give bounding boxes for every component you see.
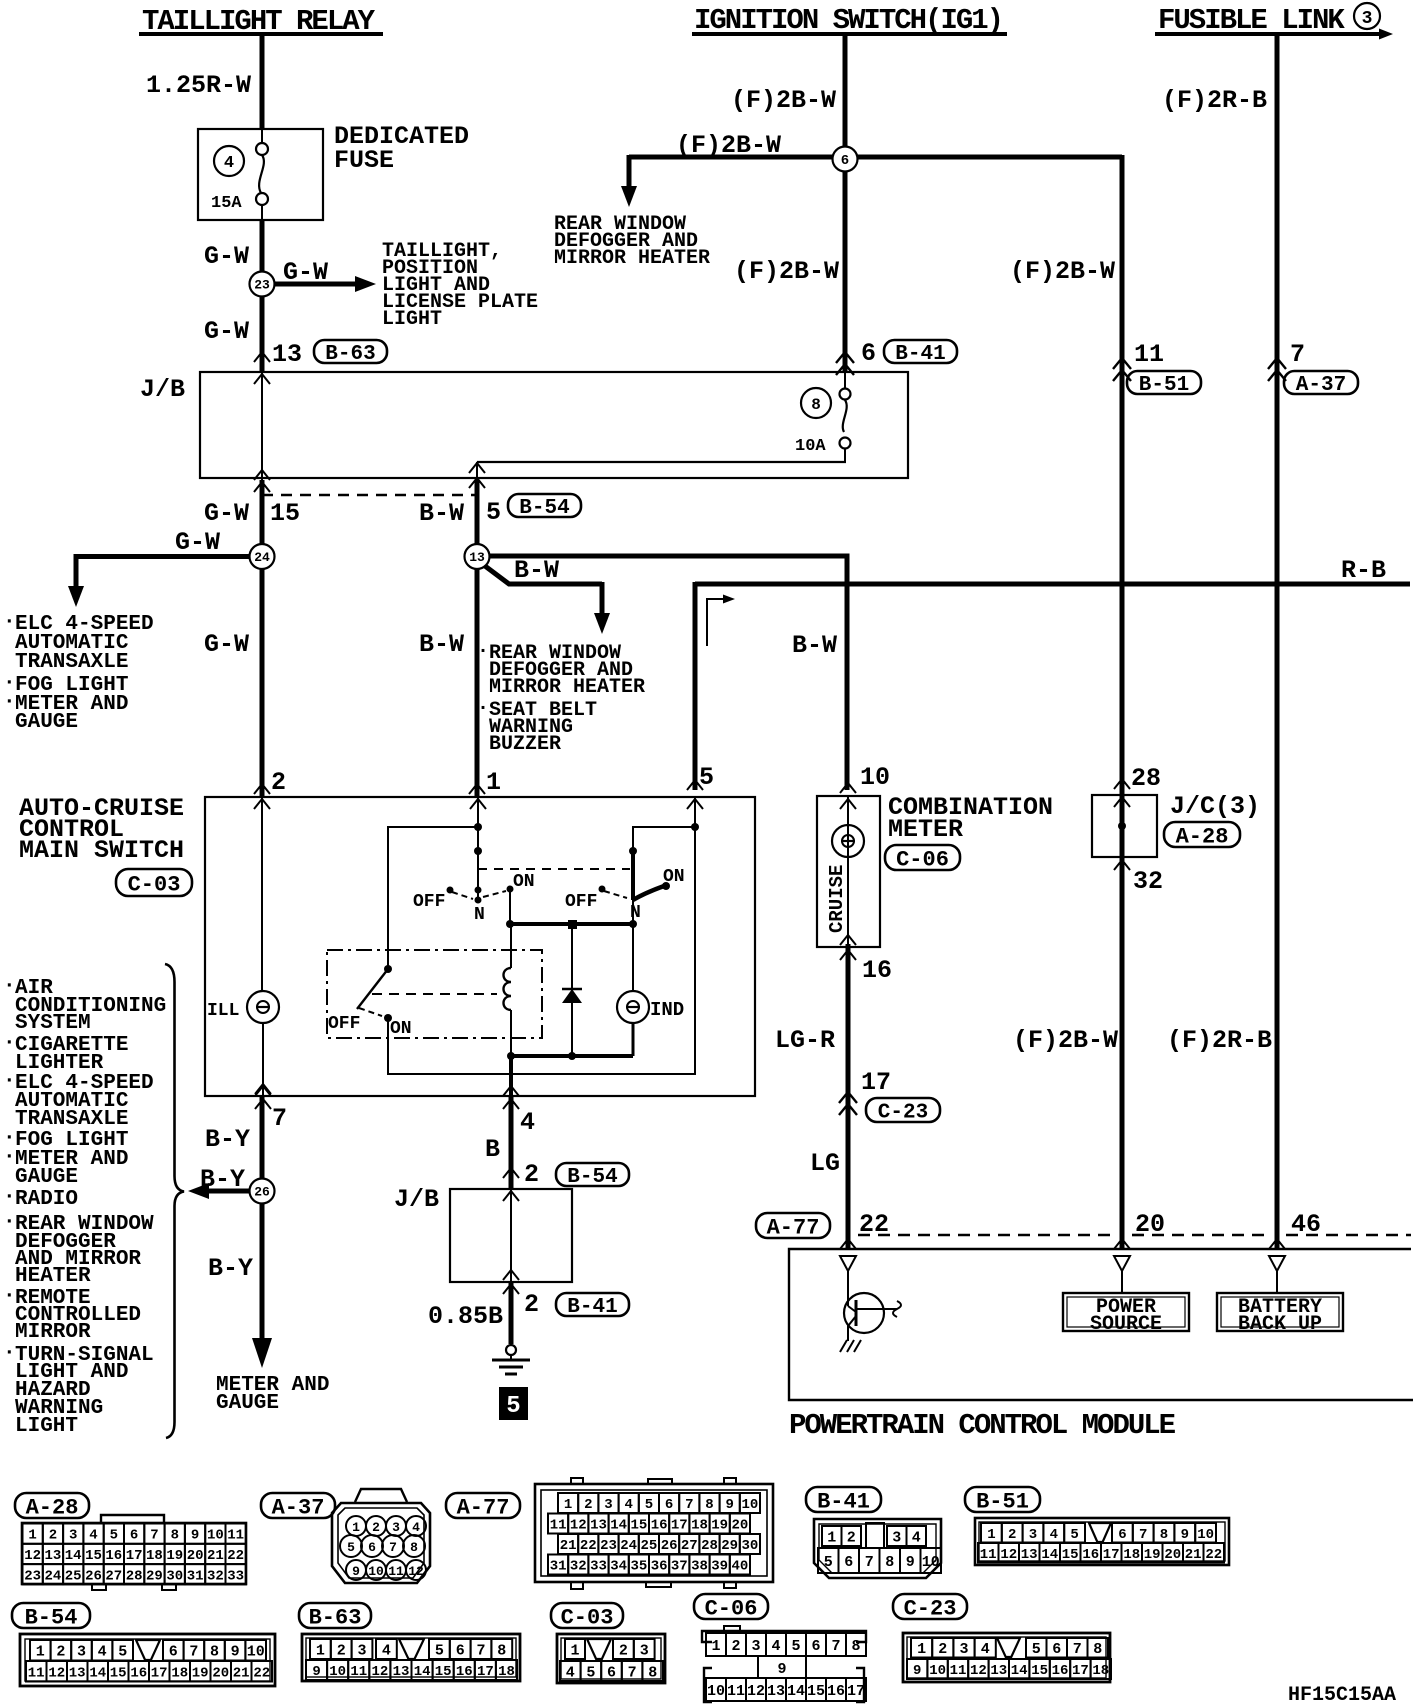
svg-text:21: 21 [560,1538,577,1554]
svg-text:A-37: A-37 [272,1495,325,1520]
svg-text:MIRROR HEATER: MIRROR HEATER [489,676,645,699]
svg-text:2: 2 [56,1644,65,1661]
svg-text:8: 8 [851,1638,860,1655]
svg-text:J/C(3): J/C(3) [1170,792,1260,821]
svg-text:34: 34 [610,1559,627,1575]
svg-text:B-41: B-41 [895,343,945,366]
svg-text:17: 17 [1103,1547,1120,1563]
svg-text:B-Y: B-Y [208,1254,253,1283]
svg-text:12: 12 [48,1665,65,1681]
svg-text:28: 28 [126,1568,143,1584]
svg-text:8: 8 [1160,1527,1168,1543]
svg-text:11: 11 [28,1665,45,1681]
svg-text:11: 11 [550,1518,567,1534]
svg-text:3: 3 [959,1641,968,1658]
svg-text:POWERTRAIN CONTROL MODULE: POWERTRAIN CONTROL MODULE [789,1409,1176,1442]
svg-text:4: 4 [520,1108,535,1137]
svg-text:16: 16 [456,1664,473,1680]
svg-text:39: 39 [711,1559,728,1575]
svg-text:12: 12 [1000,1547,1017,1563]
svg-text:36: 36 [651,1559,668,1575]
svg-text:10A: 10A [795,437,826,456]
svg-text:3: 3 [357,1642,366,1659]
svg-text:14: 14 [610,1518,627,1534]
svg-text:1: 1 [827,1529,836,1546]
svg-text:·: · [3,1032,16,1055]
svg-text:5: 5 [486,498,501,527]
svg-text:20: 20 [1164,1547,1181,1563]
svg-text:5: 5 [110,1528,118,1544]
svg-text:N: N [474,905,485,925]
svg-text:6: 6 [811,1638,820,1655]
svg-text:18: 18 [498,1664,515,1680]
svg-text:12: 12 [371,1664,388,1680]
svg-text:4: 4 [1050,1527,1058,1543]
svg-text:1: 1 [486,768,501,797]
svg-text:G-W: G-W [204,317,249,346]
svg-text:LG: LG [810,1149,840,1178]
svg-text:25: 25 [640,1538,657,1554]
svg-text:10: 10 [860,763,890,792]
svg-text:7: 7 [150,1528,158,1544]
svg-text:17: 17 [861,1068,891,1097]
svg-text:27: 27 [681,1538,698,1554]
svg-text:5: 5 [699,763,714,792]
svg-text:B-41: B-41 [567,1296,617,1319]
svg-text:B-54: B-54 [25,1605,78,1630]
svg-text:B-W: B-W [514,556,559,585]
svg-text:26: 26 [254,1185,270,1200]
svg-text:SYSTEM: SYSTEM [15,1012,91,1035]
svg-text:8: 8 [648,1664,657,1681]
svg-text:15: 15 [270,499,300,528]
svg-text:6: 6 [1118,1527,1126,1543]
svg-text:3: 3 [77,1644,86,1661]
svg-text:11: 11 [388,1564,404,1579]
svg-text:9: 9 [312,1664,320,1680]
svg-text:·: · [3,975,16,998]
svg-text:OFF: OFF [413,892,445,912]
svg-text:20: 20 [187,1548,204,1564]
svg-text:26: 26 [661,1538,678,1554]
svg-text:7: 7 [389,1540,397,1555]
svg-text:20: 20 [731,1518,748,1534]
svg-text:7: 7 [1290,340,1305,369]
svg-text:OFF: OFF [328,1014,360,1034]
svg-text:A-77: A-77 [457,1495,510,1520]
svg-text:17: 17 [847,1683,865,1700]
svg-text:10: 10 [207,1528,224,1544]
svg-text:C-23: C-23 [904,1596,957,1621]
svg-text:9: 9 [906,1554,915,1571]
svg-text:31: 31 [187,1568,204,1584]
svg-text:1: 1 [987,1527,995,1543]
svg-text:1: 1 [36,1644,45,1661]
svg-text:6: 6 [665,1497,673,1513]
svg-text:12: 12 [970,1663,987,1679]
svg-text:19: 19 [192,1665,209,1681]
svg-text:32: 32 [207,1568,224,1584]
svg-text:8: 8 [410,1540,418,1555]
svg-text:14: 14 [787,1683,805,1700]
svg-text:LG-R: LG-R [775,1026,835,1055]
svg-text:14: 14 [89,1665,106,1681]
svg-text:7: 7 [628,1664,637,1681]
svg-text:3: 3 [751,1638,760,1655]
svg-text:16: 16 [862,956,892,985]
svg-text:5: 5 [645,1497,653,1513]
svg-text:B-Y: B-Y [205,1125,250,1154]
svg-text:8: 8 [811,396,821,414]
svg-text:37: 37 [671,1559,688,1575]
svg-text:28: 28 [701,1538,718,1554]
svg-text:N: N [630,903,641,923]
svg-text:5: 5 [586,1664,595,1681]
svg-text:9: 9 [231,1644,240,1661]
svg-text:14: 14 [414,1664,431,1680]
svg-text:10: 10 [1197,1527,1214,1543]
svg-text:6: 6 [861,339,876,368]
svg-text:33: 33 [227,1568,244,1584]
svg-text:5: 5 [1070,1527,1078,1543]
svg-text:4: 4 [981,1641,990,1658]
svg-text:17: 17 [477,1664,494,1680]
svg-text:3: 3 [1029,1527,1037,1543]
svg-text:7: 7 [1139,1527,1147,1543]
svg-text:J/B: J/B [394,1185,439,1214]
svg-text:C-23: C-23 [878,1102,928,1125]
svg-text:B-W: B-W [419,499,464,528]
svg-text:10: 10 [741,1497,758,1513]
svg-text:15: 15 [1031,1663,1048,1679]
svg-text:17: 17 [151,1665,168,1681]
svg-text:4: 4 [912,1529,921,1546]
svg-text:GAUGE: GAUGE [216,1392,279,1415]
svg-text:21: 21 [207,1548,224,1564]
svg-text:4: 4 [98,1644,107,1661]
svg-text:19: 19 [711,1518,728,1534]
svg-text:·: · [3,611,16,634]
svg-text:4: 4 [624,1497,632,1513]
svg-text:17: 17 [671,1518,688,1534]
svg-text:25: 25 [65,1568,82,1584]
svg-text:14: 14 [65,1548,82,1564]
svg-text:GAUGE: GAUGE [15,711,78,734]
svg-text:C-03: C-03 [561,1605,614,1630]
svg-text:6: 6 [607,1664,616,1681]
svg-text:3: 3 [640,1642,649,1659]
svg-text:G-W: G-W [175,528,220,557]
svg-text:B-63: B-63 [325,343,375,366]
svg-text:38: 38 [691,1559,708,1575]
svg-text:6: 6 [130,1528,138,1544]
svg-text:15: 15 [435,1664,452,1680]
svg-text:J/B: J/B [140,375,185,404]
svg-text:(F)2B-W: (F)2B-W [1013,1026,1118,1055]
svg-text:2: 2 [619,1642,628,1659]
svg-text:22: 22 [227,1548,244,1564]
svg-text:R-B: R-B [1341,556,1386,585]
svg-text:12: 12 [24,1548,41,1564]
svg-text:18: 18 [1123,1547,1140,1563]
svg-text:40: 40 [731,1559,748,1575]
svg-text:4: 4 [412,1520,420,1535]
svg-text:A-37: A-37 [1296,374,1346,397]
svg-text:12: 12 [747,1683,765,1700]
svg-text:ON: ON [513,872,535,892]
svg-text:23: 23 [600,1538,617,1554]
svg-text:2: 2 [372,1520,380,1535]
svg-text:2: 2 [49,1528,57,1544]
svg-text:2: 2 [524,1290,539,1319]
svg-text:5: 5 [506,1393,520,1420]
svg-text:2: 2 [731,1638,740,1655]
svg-text:9: 9 [913,1663,921,1679]
svg-text:B-51: B-51 [976,1489,1029,1514]
svg-text:A-28: A-28 [1176,824,1229,849]
svg-text:16: 16 [1082,1547,1099,1563]
svg-text:18: 18 [146,1548,163,1564]
svg-text:BUZZER: BUZZER [489,733,561,756]
svg-text:6: 6 [1052,1641,1061,1658]
svg-text:10: 10 [707,1683,725,1700]
svg-text:7: 7 [189,1644,198,1661]
svg-text:10: 10 [929,1663,946,1679]
svg-text:3: 3 [892,1529,901,1546]
svg-text:0.85B: 0.85B [428,1302,503,1331]
svg-text:B-W: B-W [792,631,837,660]
svg-text:3: 3 [69,1528,77,1544]
svg-text:4: 4 [566,1664,575,1681]
svg-text:14: 14 [1041,1547,1058,1563]
svg-text:18: 18 [1092,1663,1109,1679]
svg-text:ON: ON [663,867,685,887]
svg-text:4: 4 [382,1642,391,1659]
svg-text:6: 6 [368,1540,376,1555]
svg-text:9: 9 [352,1564,360,1579]
svg-text:SOURCE: SOURCE [1090,1313,1162,1336]
svg-text:14: 14 [1011,1663,1028,1679]
svg-text:5: 5 [824,1554,833,1571]
svg-text:12: 12 [570,1518,587,1534]
svg-text:ILL: ILL [207,1001,239,1021]
svg-text:4: 4 [89,1528,97,1544]
svg-text:16: 16 [105,1548,122,1564]
svg-text:15: 15 [110,1665,127,1681]
svg-text:LIGHT: LIGHT [382,308,442,331]
svg-text:7: 7 [272,1104,287,1133]
svg-text:5: 5 [118,1644,127,1661]
svg-text:B-63: B-63 [309,1605,362,1630]
svg-text:3: 3 [392,1520,400,1535]
svg-text:13: 13 [590,1518,607,1534]
svg-text:17: 17 [126,1548,143,1564]
svg-text:5: 5 [791,1638,800,1655]
svg-text:TRANSAXLE: TRANSAXLE [15,651,128,674]
svg-text:METER: METER [888,815,963,844]
svg-text:22: 22 [1205,1547,1222,1563]
svg-text:26: 26 [85,1568,102,1584]
svg-text:(F)2B-W: (F)2B-W [1010,257,1115,286]
svg-text:17: 17 [1072,1663,1089,1679]
svg-text:·: · [3,1186,16,1209]
svg-text:8: 8 [171,1528,179,1544]
svg-text:29: 29 [146,1568,163,1584]
svg-text:9: 9 [1181,1527,1189,1543]
svg-text:32: 32 [570,1559,587,1575]
svg-text:GAUGE: GAUGE [15,1166,78,1189]
svg-text:4: 4 [771,1638,780,1655]
svg-text:1: 1 [564,1497,572,1513]
svg-text:1: 1 [711,1638,720,1655]
svg-text:24: 24 [620,1538,637,1554]
svg-text:HF15C15AA: HF15C15AA [1288,1684,1396,1707]
svg-text:8: 8 [705,1497,713,1513]
svg-text:TRANSAXLE: TRANSAXLE [15,1108,128,1131]
svg-text:G-W: G-W [204,499,249,528]
svg-text:21: 21 [233,1665,250,1681]
svg-text:G-W: G-W [283,258,328,287]
svg-text:1: 1 [917,1641,926,1658]
svg-text:16: 16 [827,1683,845,1700]
svg-text:13: 13 [469,550,485,565]
svg-text:29: 29 [721,1538,738,1554]
svg-text:1: 1 [28,1528,36,1544]
svg-text:·: · [3,1146,16,1169]
svg-text:·: · [3,1285,16,1308]
svg-text:7: 7 [476,1642,485,1659]
svg-text:15A: 15A [211,194,242,213]
svg-text:19: 19 [1144,1547,1161,1563]
svg-text:21: 21 [1185,1547,1202,1563]
svg-text:A-77: A-77 [767,1215,820,1240]
svg-text:FUSE: FUSE [334,146,394,175]
svg-text:MIRROR: MIRROR [15,1321,91,1344]
svg-text:24: 24 [254,550,270,565]
svg-text:11: 11 [727,1683,745,1700]
svg-text:(F)2B-W: (F)2B-W [734,257,839,286]
svg-text:2: 2 [271,768,286,797]
svg-text:ON: ON [390,1019,412,1039]
svg-text:5: 5 [435,1642,444,1659]
svg-text:2: 2 [584,1497,592,1513]
svg-text:15: 15 [1062,1547,1079,1563]
svg-text:20: 20 [212,1665,229,1681]
svg-text:2: 2 [337,1642,346,1659]
svg-text:28: 28 [1131,764,1161,793]
svg-text:8: 8 [210,1644,219,1661]
svg-text:1.25R-W: 1.25R-W [146,71,251,100]
svg-text:30: 30 [741,1538,758,1554]
svg-text:8: 8 [1093,1641,1102,1658]
svg-text:13: 13 [272,340,302,369]
svg-text:B-54: B-54 [567,1166,617,1189]
svg-text:LIGHT: LIGHT [15,1415,78,1438]
svg-text:11: 11 [950,1663,967,1679]
svg-text:·: · [3,1070,16,1093]
svg-text:8: 8 [885,1554,894,1571]
svg-text:16: 16 [1052,1663,1069,1679]
svg-text:HEATER: HEATER [15,1265,91,1288]
svg-text:22: 22 [253,1665,270,1681]
svg-text:G-W: G-W [204,630,249,659]
svg-text:23: 23 [24,1568,41,1584]
svg-text:10: 10 [329,1664,346,1680]
svg-text:5: 5 [347,1540,355,1555]
svg-text:6: 6 [169,1644,178,1661]
svg-text:·: · [3,1211,16,1234]
svg-text:7: 7 [865,1554,874,1571]
svg-text:2: 2 [938,1641,947,1658]
svg-text:1: 1 [352,1520,360,1535]
svg-text:MAIN SWITCH: MAIN SWITCH [19,836,184,865]
svg-text:10: 10 [368,1564,384,1579]
svg-text:7: 7 [685,1497,693,1513]
svg-text:C-06: C-06 [705,1596,758,1621]
svg-text:7: 7 [1073,1641,1082,1658]
svg-text:4: 4 [224,154,234,173]
svg-text:1: 1 [316,1642,325,1659]
svg-text:C-03: C-03 [128,872,181,897]
svg-text:13: 13 [393,1664,410,1680]
svg-text:2: 2 [1008,1527,1016,1543]
svg-text:6: 6 [841,153,849,169]
svg-text:18: 18 [171,1665,188,1681]
svg-text:B-51: B-51 [1139,374,1189,397]
svg-text:11: 11 [350,1664,367,1680]
svg-text:B-54: B-54 [519,497,569,520]
svg-text:31: 31 [550,1559,567,1575]
svg-text:30: 30 [166,1568,183,1584]
svg-text:35: 35 [630,1559,647,1575]
svg-text:1: 1 [570,1642,579,1659]
svg-text:B-41: B-41 [817,1489,870,1514]
svg-text:15: 15 [807,1683,825,1700]
svg-text:CRUISE: CRUISE [826,865,848,933]
svg-text:G-W: G-W [204,242,249,271]
svg-text:22: 22 [580,1538,597,1554]
svg-text:24: 24 [44,1568,61,1584]
svg-text:RADIO: RADIO [15,1188,78,1211]
svg-text:2: 2 [524,1160,539,1189]
svg-text:10: 10 [922,1554,940,1571]
svg-text:8: 8 [497,1642,506,1659]
svg-text:(F)2R-B: (F)2R-B [1167,1026,1272,1055]
svg-text:·: · [3,1342,16,1365]
svg-text:19: 19 [166,1548,183,1564]
svg-text:2: 2 [847,1529,856,1546]
svg-text:10: 10 [247,1644,265,1661]
svg-text:6: 6 [844,1554,853,1571]
svg-text:12: 12 [408,1564,424,1579]
svg-text:BACK UP: BACK UP [1238,1313,1322,1336]
svg-text:(F)2R-B: (F)2R-B [1162,86,1267,115]
svg-text:32: 32 [1133,867,1163,896]
svg-text:(F)2B-W: (F)2B-W [676,131,781,160]
svg-text:IND: IND [650,999,684,1021]
svg-text:OFF: OFF [565,892,597,912]
svg-text:3: 3 [604,1497,612,1513]
svg-text:13: 13 [69,1665,86,1681]
svg-text:11: 11 [980,1547,997,1563]
svg-text:13: 13 [990,1663,1007,1679]
svg-text:9: 9 [725,1497,733,1513]
svg-text:13: 13 [44,1548,61,1564]
svg-text:6: 6 [456,1642,465,1659]
svg-text:C-06: C-06 [896,847,949,872]
svg-text:B-W: B-W [419,630,464,659]
svg-text:9: 9 [777,1661,786,1678]
